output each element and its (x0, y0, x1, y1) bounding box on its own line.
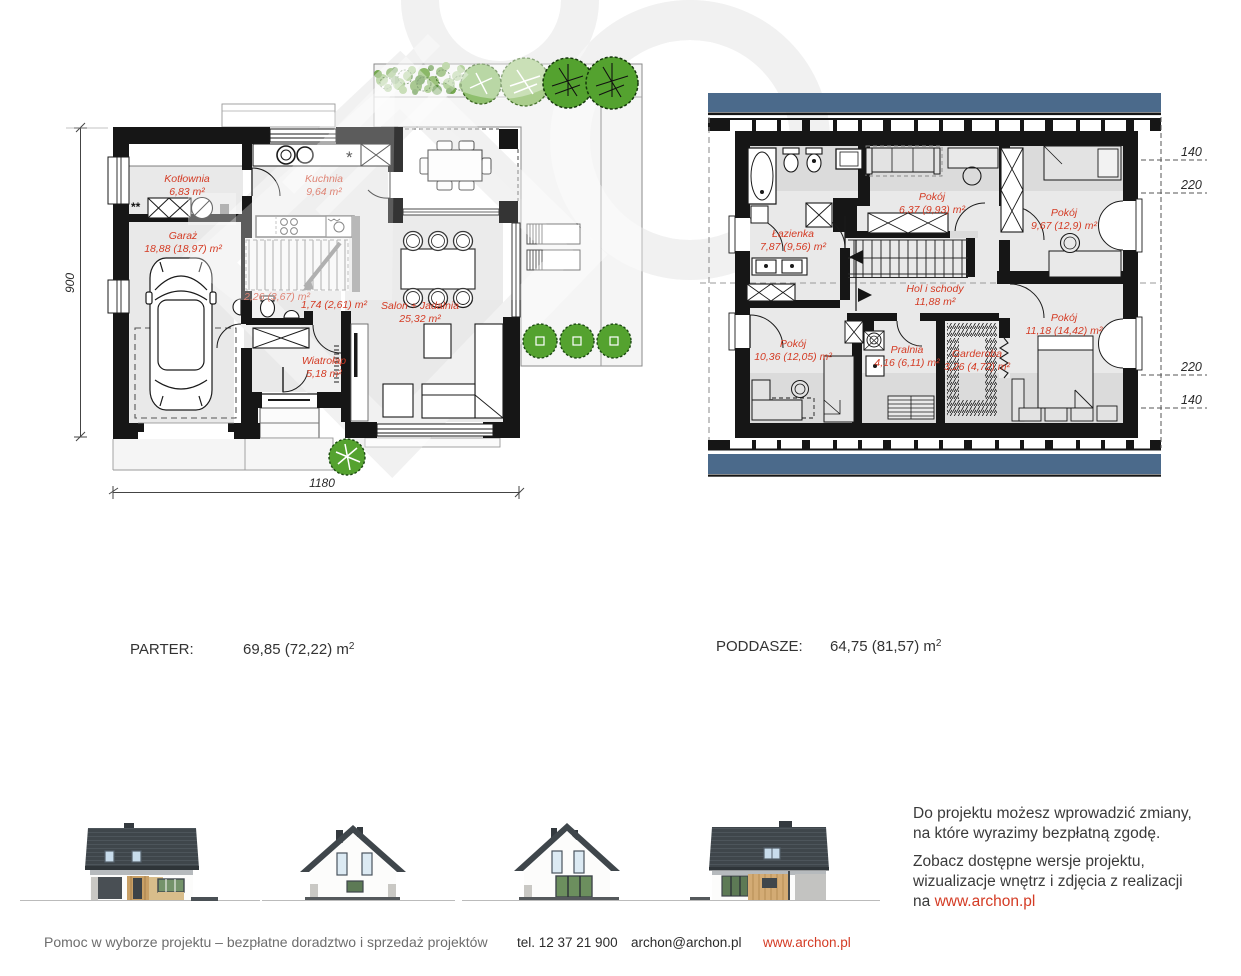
svg-text:140: 140 (1181, 393, 1202, 407)
svg-text:4,16 (6,11) m²: 4,16 (6,11) m² (874, 357, 940, 369)
svg-text:3,26 (4,72) m²: 3,26 (4,72) m² (944, 361, 1010, 373)
svg-text:**: ** (131, 200, 141, 214)
svg-text:Salon + Jadalnia: Salon + Jadalnia (381, 300, 459, 312)
svg-text:Garaż: Garaż (169, 230, 198, 242)
svg-text:www.archon.pl: www.archon.pl (762, 935, 851, 950)
svg-text:PARTER:: PARTER: (130, 641, 194, 658)
svg-text:220: 220 (1180, 360, 1202, 374)
svg-text:*: * (346, 148, 353, 167)
svg-text:na www.archon.pl: na www.archon.pl (913, 893, 1035, 910)
svg-text:10,36 (12,05) m²: 10,36 (12,05) m² (754, 351, 832, 363)
svg-text:25,32 m²: 25,32 m² (398, 313, 441, 325)
svg-text:140: 140 (1181, 145, 1202, 159)
svg-text:Pokój: Pokój (1051, 312, 1078, 324)
svg-text:9,67 (12,9) m²: 9,67 (12,9) m² (1031, 220, 1097, 232)
svg-text:1,74 (2,61) m²: 1,74 (2,61) m² (301, 299, 367, 311)
svg-text:Wiatrołap: Wiatrołap (302, 355, 346, 367)
svg-text:Pralnia: Pralnia (891, 344, 924, 356)
svg-text:Kuchnia: Kuchnia (305, 173, 343, 185)
svg-text:Kotłownia: Kotłownia (164, 173, 210, 185)
svg-text:7,87 (9,56) m²: 7,87 (9,56) m² (760, 241, 826, 253)
svg-text:Zobacz dostępne wersje projekt: Zobacz dostępne wersje projektu, (913, 853, 1145, 870)
svg-text:Pokój: Pokój (919, 191, 946, 203)
svg-text:6,37 (9,93) m²: 6,37 (9,93) m² (899, 204, 965, 216)
svg-text:tel. 12 37 21 900: tel. 12 37 21 900 (517, 935, 618, 950)
svg-text:6,83 m²: 6,83 m² (169, 186, 205, 198)
svg-text:Łazienka: Łazienka (772, 228, 814, 240)
svg-text:Pokój: Pokój (780, 338, 807, 350)
svg-text:Hol i schody: Hol i schody (906, 283, 964, 295)
svg-text:11,18 (14,42) m²: 11,18 (14,42) m² (1026, 325, 1103, 337)
svg-text:Do projektu możesz wprowadzić: Do projektu możesz wprowadzić zmiany, (913, 805, 1192, 822)
svg-text:64,75 (81,57) m2: 64,75 (81,57) m2 (830, 638, 942, 655)
svg-text:69,85 (72,22) m2: 69,85 (72,22) m2 (243, 641, 355, 658)
svg-text:18,88 (18,97) m²: 18,88 (18,97) m² (144, 243, 222, 255)
svg-text:PODDASZE:: PODDASZE: (716, 638, 803, 655)
svg-text:11,88 m²: 11,88 m² (915, 296, 956, 308)
svg-text:9,64 m²: 9,64 m² (306, 186, 342, 198)
svg-text:wizualizacje wnętrz i zdjęcia: wizualizacje wnętrz i zdjęcia z realizac… (912, 873, 1183, 890)
svg-text:na które wyrazimy bezpłatną zg: na które wyrazimy bezpłatną zgodę. (913, 825, 1160, 842)
svg-text:5,18 m²: 5,18 m² (306, 368, 342, 380)
svg-text:220: 220 (1180, 178, 1202, 192)
svg-text:1180: 1180 (309, 476, 335, 490)
svg-text:Pokój: Pokój (1051, 207, 1078, 219)
svg-text:archon@archon.pl: archon@archon.pl (631, 935, 742, 950)
svg-text:900: 900 (63, 273, 77, 293)
svg-text:Pomoc w wyborze projektu – bez: Pomoc w wyborze projektu – bezpłatne dor… (44, 934, 488, 950)
svg-text:Garderoba: Garderoba (952, 348, 1002, 360)
